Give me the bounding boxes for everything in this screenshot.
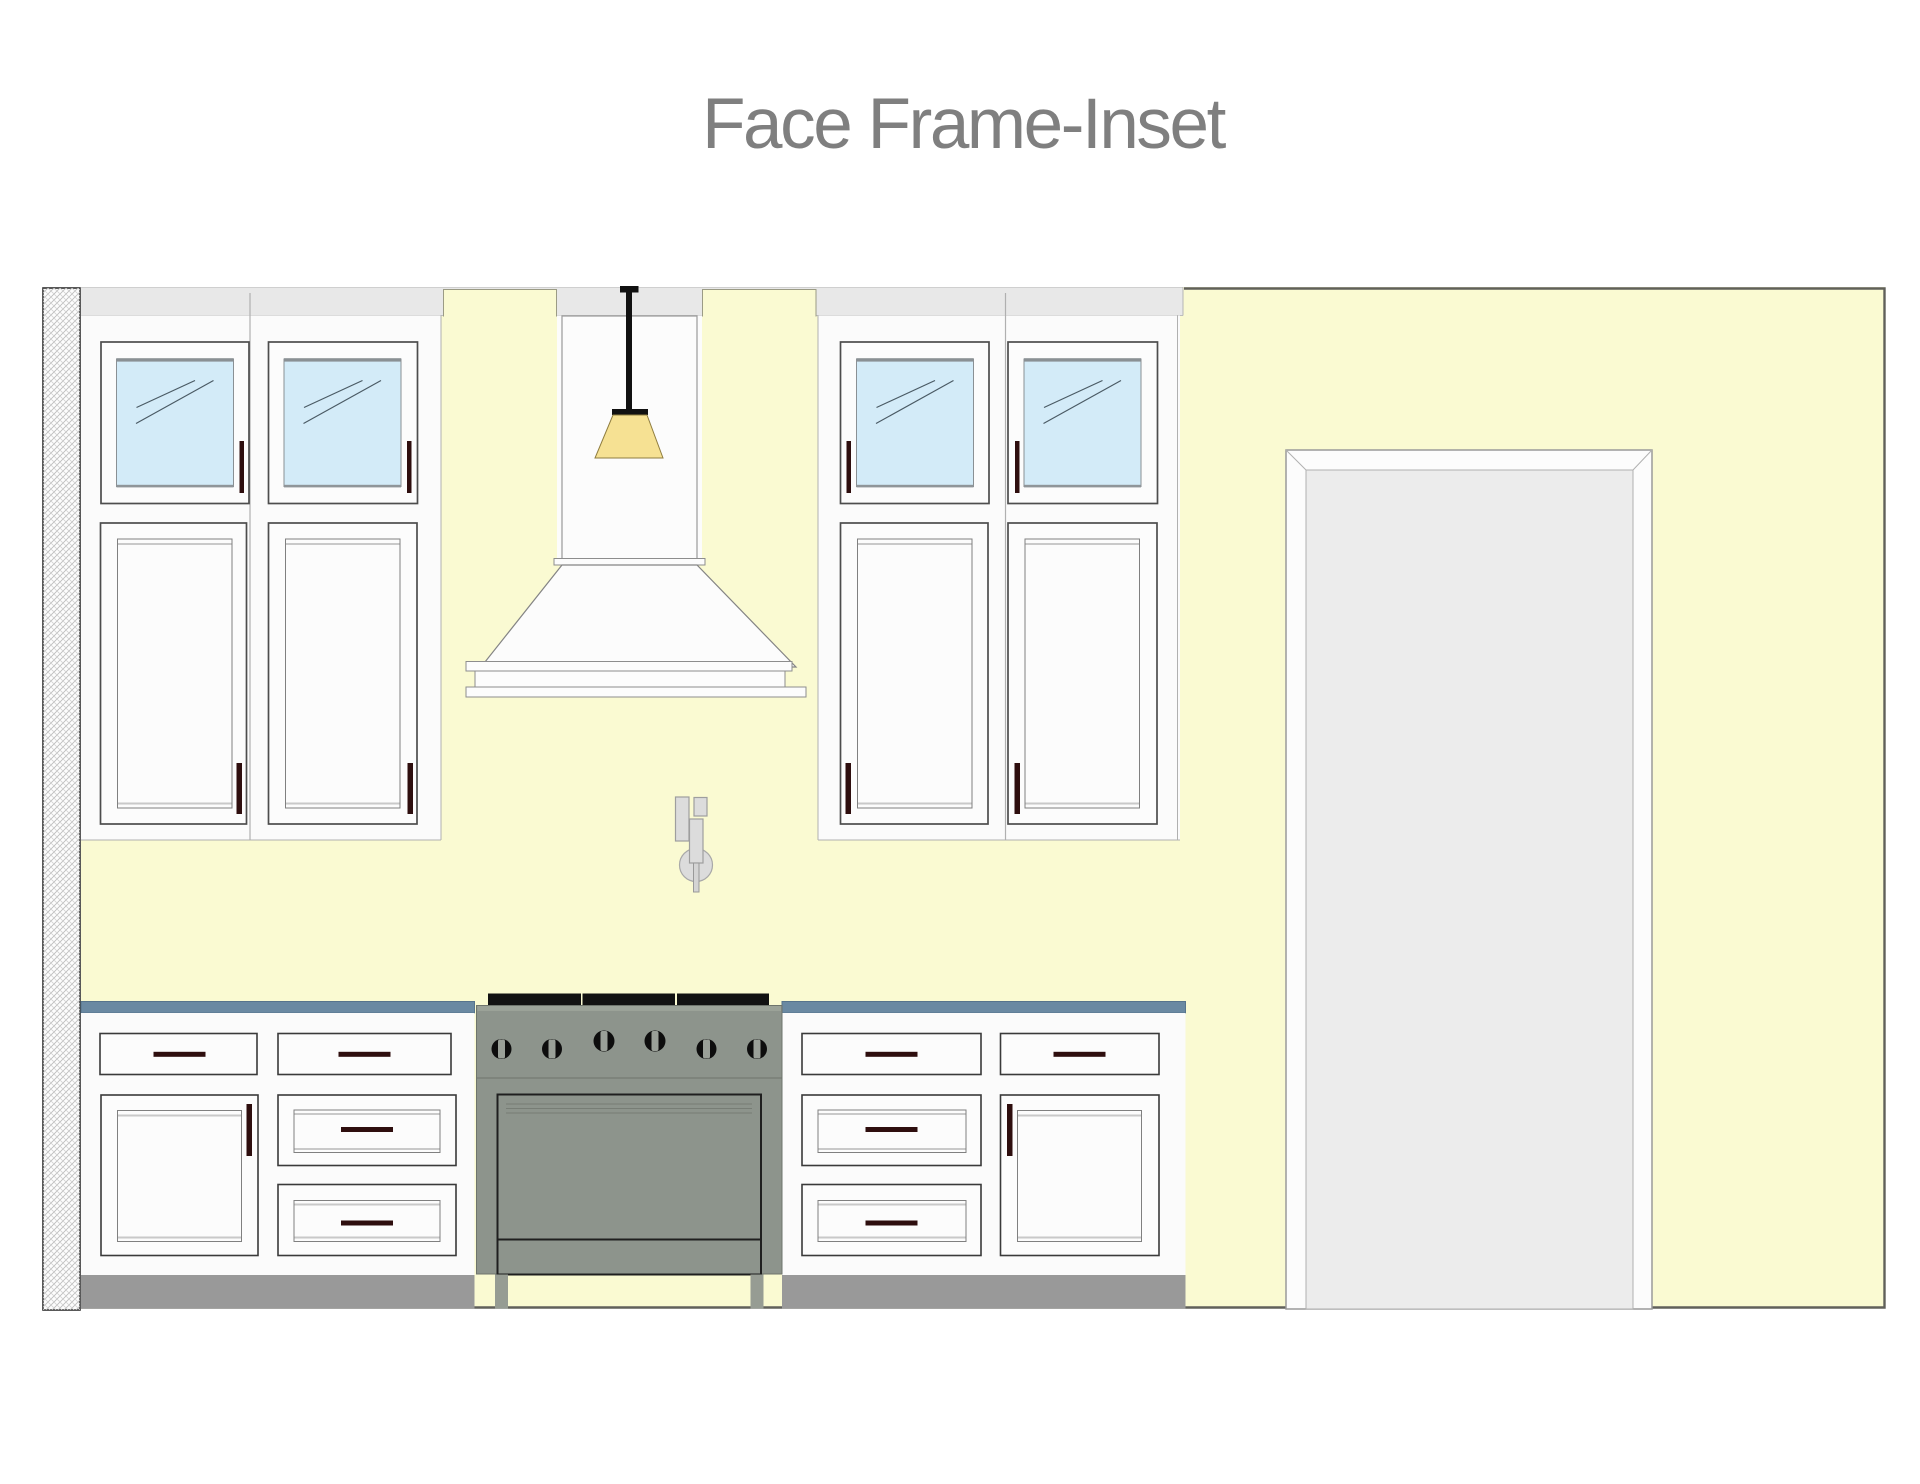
- svg-text:Face Frame-Inset: Face Frame-Inset: [702, 85, 1227, 164]
